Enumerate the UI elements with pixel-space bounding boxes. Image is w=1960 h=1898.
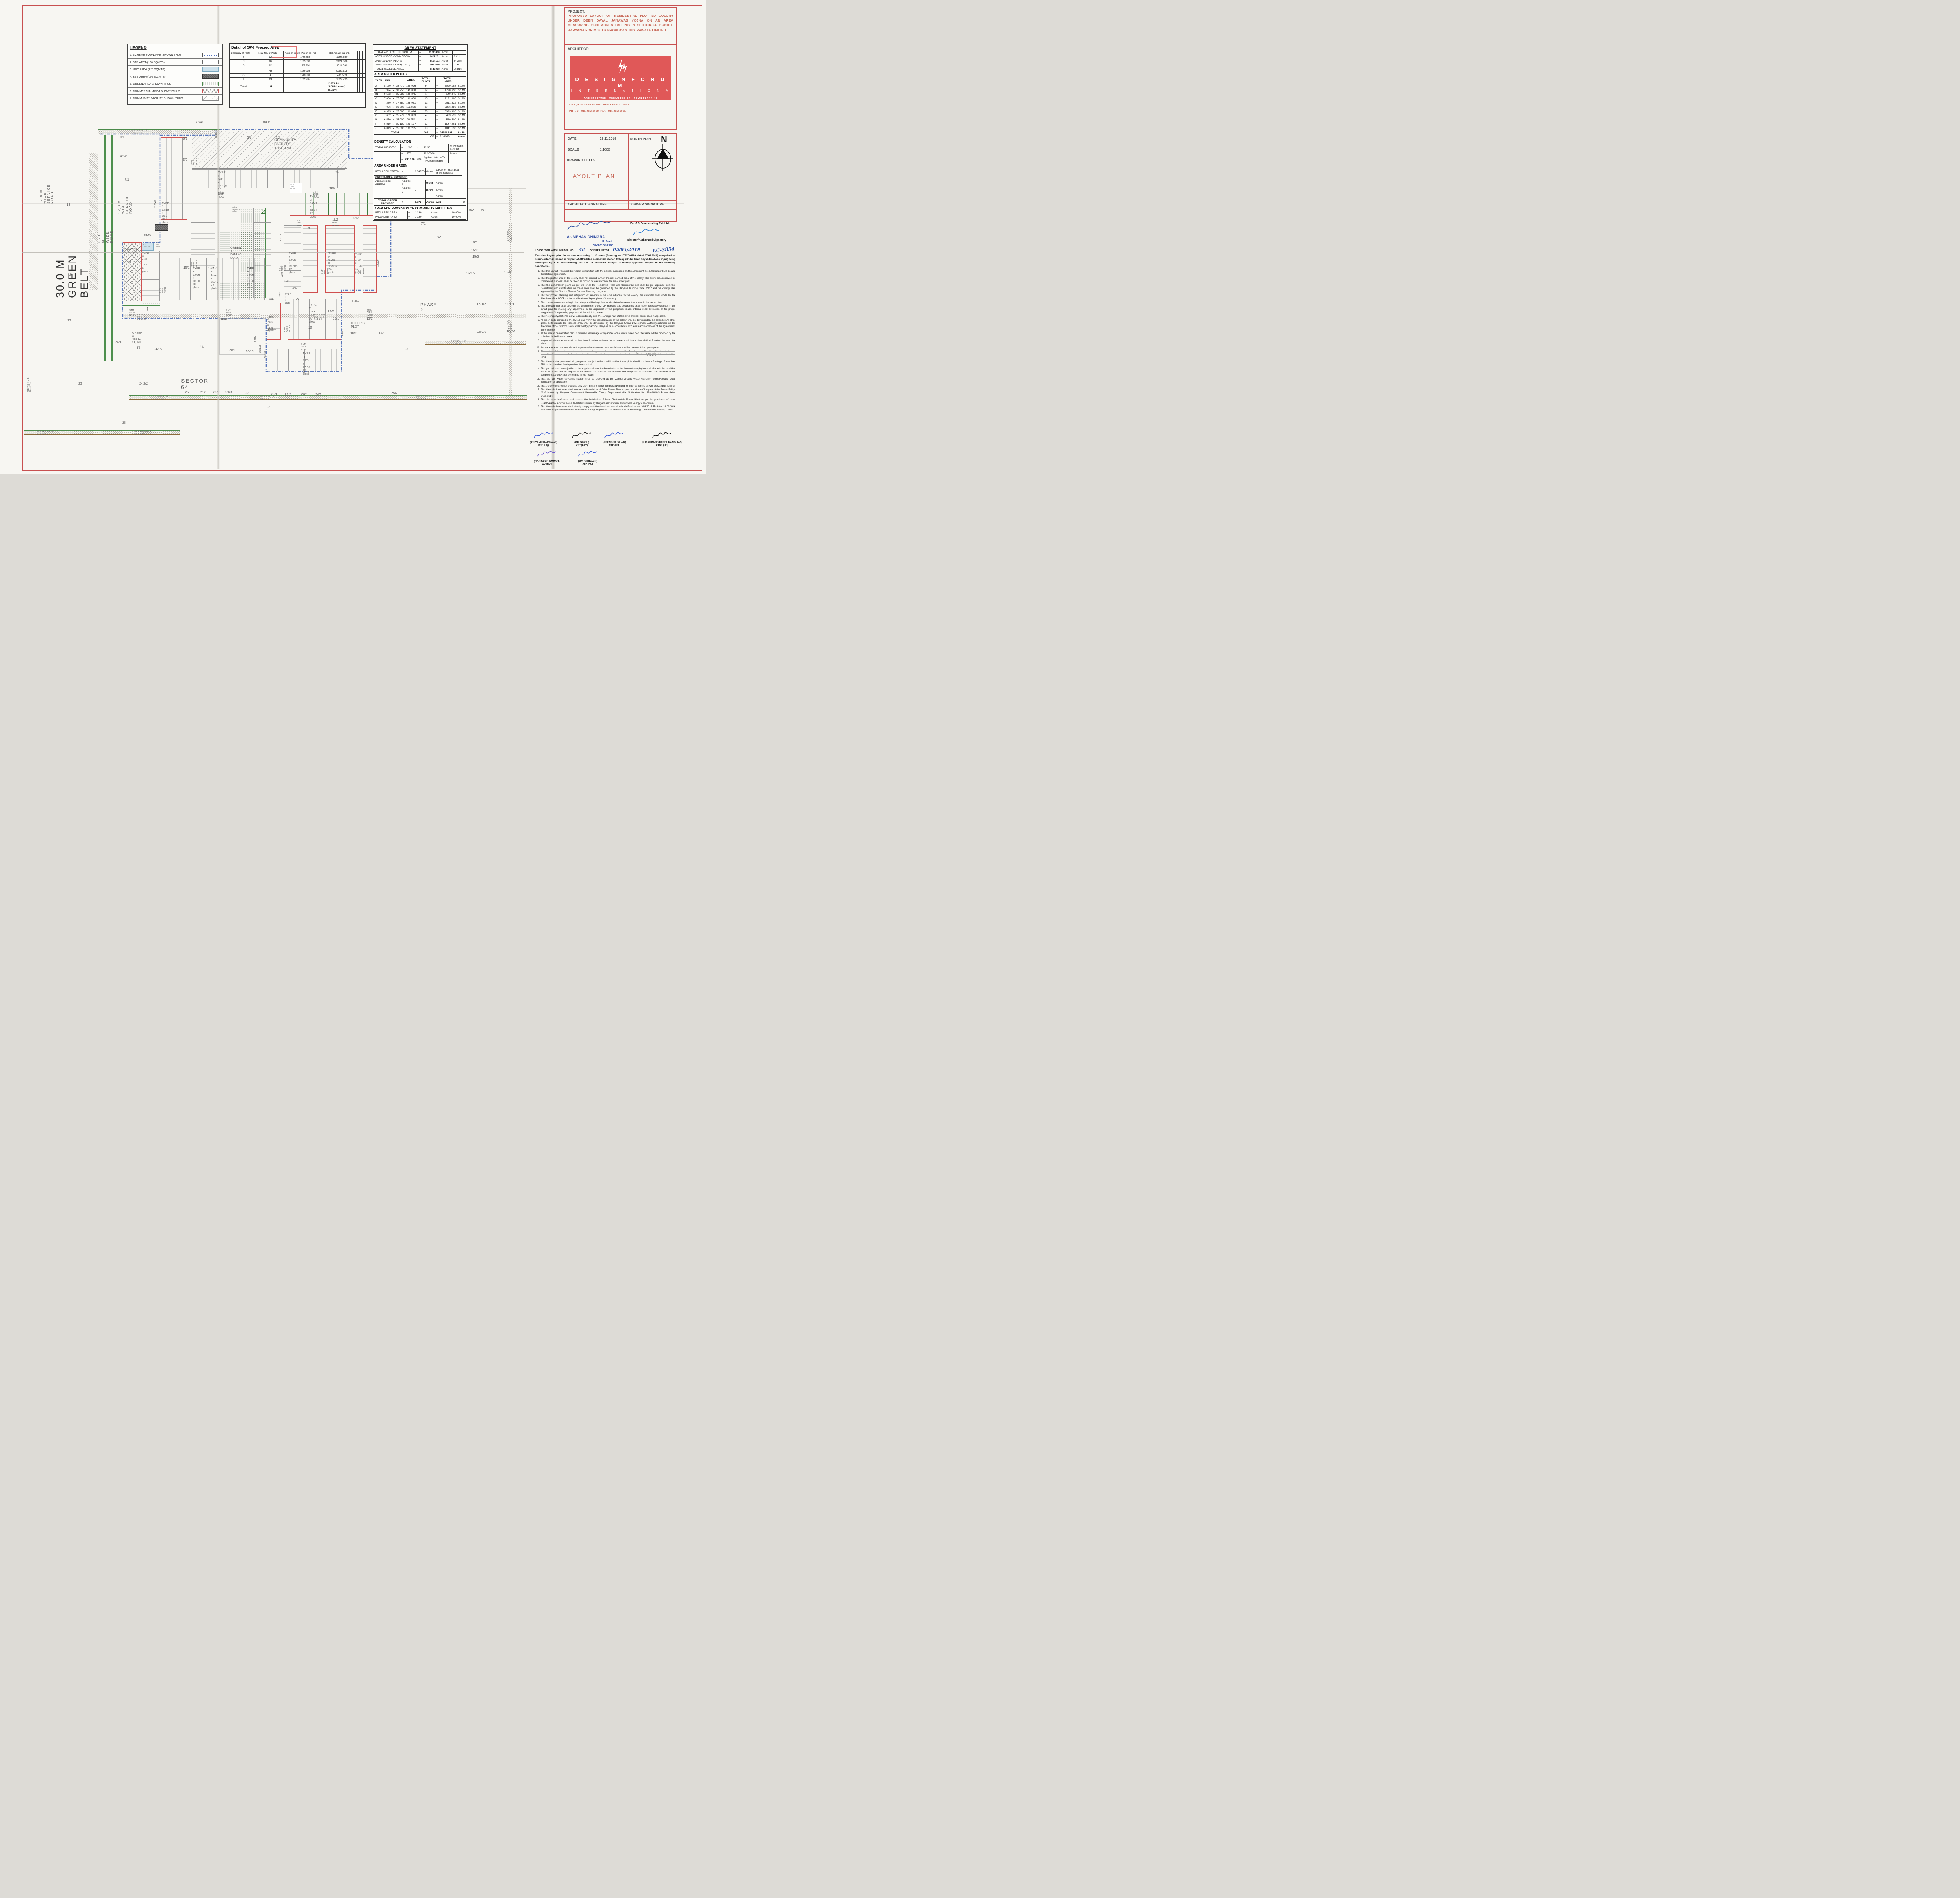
area-plots-cell: 6.819 xyxy=(383,122,392,127)
freezed-cell: 5233.155 xyxy=(327,69,357,73)
plan-block xyxy=(363,225,377,293)
license-condition: That the colonizer/owner shall strictly … xyxy=(541,405,675,412)
density-cell xyxy=(374,156,401,163)
freezed-cell xyxy=(362,55,365,60)
plan-label: 20/1/1 xyxy=(268,328,276,331)
green-provided-title-cell: GREEN AREA PROVIDED xyxy=(374,175,462,180)
plan-label: 8/1/1 xyxy=(353,216,360,220)
area-plots-cell: x xyxy=(392,114,395,118)
area-plots-cell: 7.800 xyxy=(383,97,392,101)
area-plots-row: I6.819x15.125103.13715=1547.061Sq.Mt xyxy=(374,122,466,127)
plan-block xyxy=(123,302,160,306)
area-plots-cell: Sq.Mt xyxy=(457,84,466,88)
area-plots-cell: 6 xyxy=(417,118,436,122)
area-main-cell: = xyxy=(419,59,423,63)
area-plots-cell: 16 xyxy=(417,97,436,101)
area-plots-header-cell xyxy=(392,77,395,84)
license-condition: That the rain water harvesting system sh… xyxy=(541,378,675,384)
plan-label: 33530 xyxy=(352,301,359,303)
freezed-table-el: Category of PlotsTotal No. of PlotsArea … xyxy=(230,51,365,93)
plan-label: 15/4/2 xyxy=(466,272,475,276)
area-plots-cell: 149.976 xyxy=(405,84,417,88)
area-plots-cell: 102.285 xyxy=(405,126,417,131)
density-cell: Against 240 - 400 PPA permissible xyxy=(423,156,449,163)
area-plots-header-cell: TOTAL PLOTS xyxy=(417,77,436,84)
freezed-cell: 12 xyxy=(257,64,284,68)
density-cell: Acres xyxy=(449,151,466,156)
area-plots-cell: 58 xyxy=(417,109,436,114)
plan-block xyxy=(26,24,26,416)
green-provided-cell: Acres xyxy=(435,194,462,199)
plan-label: REVENUE RASTA xyxy=(259,396,276,401)
freezed-row: G4120.883483.533 xyxy=(230,73,365,78)
area-plots-cell: 15.586 xyxy=(395,109,405,114)
drawing-title: LAYOUT PLAN xyxy=(569,173,615,179)
plan-label: 13/2 xyxy=(367,317,373,320)
area-main-cell: 11.30000 xyxy=(423,51,441,55)
plan-label: REVENUE RASTA xyxy=(132,129,149,135)
area-plots-cell: 483.533 xyxy=(439,114,457,118)
density-row: =246.106PPAAgainst 240 - 400 PPA permiss… xyxy=(374,156,466,163)
area-plots-cell: 17.350 xyxy=(395,101,405,105)
plan-label: 21/3 xyxy=(225,390,232,394)
license-condition: That you will have no objection to the r… xyxy=(541,367,675,377)
area-main-cell: = xyxy=(419,51,423,55)
architect-reg: CA/2018/92185 xyxy=(593,243,613,247)
area-main-cell: 0.00680 xyxy=(423,63,441,67)
area-plots-cell: 9.582 xyxy=(383,93,392,97)
area-plots-cell: 103.137 xyxy=(405,122,417,127)
plan-block xyxy=(155,224,168,231)
area-main-cell: = xyxy=(419,54,423,59)
green-provided-cell: 0.844 xyxy=(425,180,435,187)
plan-label: 9 MT. WIDE ROAD xyxy=(191,260,198,267)
area-plots-cell: = xyxy=(436,114,439,118)
area-main-cell: Acres xyxy=(441,59,452,63)
freezed-header-cell: Category of Plots xyxy=(230,51,257,55)
area-plots-cell: 1 xyxy=(417,93,436,97)
owner-sig-header: OWNER SIGNATURE xyxy=(628,200,677,210)
area-plots-cell: 2121.600 xyxy=(439,97,457,101)
signature-scribble-icon xyxy=(571,431,592,439)
area-plots-cell: 1798.650 xyxy=(439,88,457,93)
plan-label: 9 MT. WIDE ROAD xyxy=(226,309,232,317)
plan-label: 5/2 xyxy=(183,158,187,162)
plan-label: 7/2 xyxy=(436,235,441,239)
area-plots-header-cell: SIZE xyxy=(383,77,392,84)
area-statement-title: AREA STATEMENT xyxy=(374,46,466,50)
plan-label: 20117 xyxy=(269,298,274,301)
legend-box: LEGEND 1. SCHEME BOUNDARY SHOWN THUS2. S… xyxy=(127,44,223,105)
legend-item-label: 7. COMMUBITY FACILITY SHOWN THUS xyxy=(128,96,202,100)
plan-label: 117340 xyxy=(154,200,157,208)
community-cell: 10.00% xyxy=(446,211,466,215)
density-cell: TOTAL DENSITY xyxy=(374,144,401,152)
area-plots-cell: Sq.Mt xyxy=(457,93,466,97)
area-plots-cell: 15 xyxy=(417,122,436,127)
legend-item-label: 2. STP AREA (100 SQMTS) xyxy=(128,60,202,64)
green-provided-cell xyxy=(401,194,414,199)
green-total-row: TOTAL GREEN PROVIDED=0.872Acres7.71% xyxy=(374,198,466,206)
density-cell: PPA xyxy=(416,156,423,163)
plan-label: REVENUE RASTA xyxy=(27,377,33,392)
signatory-name: (P.P. SINGH) xyxy=(571,441,592,444)
freezed-area-box: Detail of 50% Freezed Area Category of P… xyxy=(229,43,366,108)
plan-label: 9 MT. WIDE ROAD xyxy=(159,287,167,293)
plan-label: 4/2/2 xyxy=(120,154,127,158)
signature-scribble-icon xyxy=(536,450,557,458)
area-plots-title: AREA UNDER PLOTS xyxy=(374,73,466,76)
plan-label: 6/2 xyxy=(469,208,474,212)
density-cell: 2781 xyxy=(404,151,416,156)
area-main-cell: Acres xyxy=(441,67,452,72)
plan-label: 27 xyxy=(296,297,299,301)
area-plots-header-cell xyxy=(395,77,405,84)
legend-item: 2. STP AREA (100 SQMTS) xyxy=(128,58,222,66)
plan-label: 18/1 xyxy=(379,332,385,335)
architect-signature-icon xyxy=(566,220,613,233)
area-plots-cell: Sq.Mt xyxy=(457,105,466,109)
green-provided-cell xyxy=(414,194,426,199)
signature-area: Ar. MEHAK DHINGRA B. Arch. CA/2018/92185… xyxy=(564,222,677,249)
legend-item: 5. GREEN AREA SHOWN THUS xyxy=(128,80,222,87)
area-plots-table: TYPESIZEAREATOTAL PLOTSTOTAL AREAA8.120x… xyxy=(374,76,466,139)
green-title: AREA UNDER GREEN xyxy=(374,164,466,167)
area-plots-or-cell: = xyxy=(436,135,439,139)
freezed-cell: 48 xyxy=(257,69,284,73)
plan-block xyxy=(129,395,527,400)
plan-block xyxy=(22,252,524,253)
plan-label: ET 100 sq.mt. xyxy=(156,242,160,248)
freezed-row: D12125.9611511.532 xyxy=(230,64,365,68)
signature-scribble-icon xyxy=(577,450,598,458)
plan-label: 5/1 xyxy=(183,137,187,140)
plan-label: 24/1/2 xyxy=(154,347,162,351)
plan-label: 60350 xyxy=(342,330,344,336)
plan-label: TYPE C 7.8 x 17.0 16 plots xyxy=(309,303,317,324)
plan-label: 16760 xyxy=(292,287,297,290)
area-plots-cell: 18.470 xyxy=(395,84,405,88)
green-total-cell: Acres xyxy=(425,198,435,206)
area-plots-cell: x xyxy=(392,88,395,93)
plan-label: GREEN 2 113.44 SQ.MT. xyxy=(132,332,142,344)
plan-block xyxy=(111,135,113,361)
green-provided-cell xyxy=(374,194,401,199)
area-main-cell: 56.816 xyxy=(453,67,466,72)
north-n: N xyxy=(661,134,667,145)
license-condition: That the odd size plots are being approv… xyxy=(541,360,675,367)
area-plots-cell: 132.600 xyxy=(405,97,417,101)
community-title: AREA FOR PROVISION OF COMMUNITY FACILITI… xyxy=(374,207,466,210)
license-date: 05/03/2019 xyxy=(610,247,643,252)
date-label: DATE xyxy=(568,136,577,140)
north-label: NORTH POINT: xyxy=(630,137,653,141)
plan-block xyxy=(104,135,106,361)
area-plots-cell: Sq.Mt xyxy=(457,122,466,127)
plan-label: 25/2 xyxy=(391,391,398,395)
area-main-cell: 2.411 xyxy=(453,54,466,59)
green-required-cell: 0.84750 xyxy=(414,168,426,176)
drawing-sheet: REVENUE RASTAREVENUE RASTA 2 KARAMREVENU… xyxy=(0,0,706,474)
license-conditions: That this Layout Plan shall be read in c… xyxy=(535,270,675,412)
area-plots-cell: x xyxy=(392,97,395,101)
area-plots-cell: 15.125 xyxy=(395,122,405,127)
scale-label: SCALE xyxy=(568,147,579,151)
legend-item-label: 5. GREEN AREA SHOWN THUS xyxy=(128,82,202,85)
plan-label: 3360 xyxy=(215,133,218,138)
density-cell: ÷ xyxy=(416,151,423,156)
area-plots-cell: 7.260 xyxy=(383,101,392,105)
area-plots-total-cell: 24851.825 xyxy=(439,131,457,135)
plan-label: 87177 xyxy=(303,372,309,374)
freezed-cell: 13 xyxy=(257,78,284,82)
area-plots-cell: 12 xyxy=(417,88,436,93)
area-plots-total-cell: 206 xyxy=(417,131,436,135)
plan-label: 15/2 xyxy=(471,249,478,252)
plan-label: OTHER'S PLOT xyxy=(351,321,365,329)
density-title: DENSITY CALCULATION xyxy=(374,140,466,143)
legend-title: LEGEND xyxy=(128,44,222,51)
plan-block xyxy=(509,188,512,396)
area-plots-cell: = xyxy=(436,118,439,122)
area-plots-cell: Sq.Mt xyxy=(457,126,466,131)
green-rows: REQUIRED GREEN=0.84750Acres7.50% of Tota… xyxy=(374,168,466,206)
area-plots-cell: x xyxy=(392,109,395,114)
freezed-cell xyxy=(362,69,365,73)
plan-label: 2/2 xyxy=(276,136,280,140)
freezed-cell: G xyxy=(230,73,257,78)
plan-label: 20/1/3 xyxy=(259,345,262,353)
area-plots-cell: x xyxy=(392,93,395,97)
license-condition: That no property/plot shall derive acces… xyxy=(541,315,675,318)
area-plots-or-cell xyxy=(374,135,417,139)
plan-label: 14 xyxy=(128,260,131,264)
freezed-total-cell: 105 xyxy=(257,82,284,92)
project-box: PROJECT: PROPOSED LAYOUT OF RESIDENTIAL … xyxy=(564,7,677,45)
plan-label: 13 xyxy=(67,203,70,207)
area-plots-or-row: OR=6.14103Acres xyxy=(374,135,466,139)
green-provided-cell xyxy=(425,194,435,199)
community-cell: PROVIDED AREA xyxy=(374,215,408,220)
green-provided-cell: = xyxy=(414,180,426,187)
freezed-cell: 1798.650 xyxy=(327,55,357,60)
plan-label: 23/1 xyxy=(271,392,278,396)
freezed-header-cell: Total Area in sq. mt. xyxy=(327,51,357,55)
legend-item: 1. SCHEME BOUNDARY SHOWN THUS xyxy=(128,51,222,58)
plan-label: 17 xyxy=(136,346,140,350)
signatory-role: STP (E&V) xyxy=(571,444,592,447)
date-value: 29.11.2018 xyxy=(600,136,616,140)
plan-label: PHASE 2 xyxy=(420,303,437,312)
plan-label: 18 xyxy=(68,273,72,276)
plan-label: 15/2 xyxy=(208,267,214,270)
area-plots-cell: 8.120 xyxy=(383,84,392,88)
area-plots-cell: 98.250 xyxy=(405,118,417,122)
area-plots-cell: = xyxy=(436,105,439,109)
area-plots-row: G7.662x15.777120.8834=483.533Sq.Mt xyxy=(374,114,466,118)
license-condition: At the time of demarcation plan, if requ… xyxy=(541,332,675,338)
plan-label: TYPE E 7.056 x 16.00 20 plots xyxy=(247,267,254,289)
freezed-total-cell xyxy=(284,82,327,92)
plan-label: 15/1 xyxy=(183,266,190,269)
green-provided-title-row: GREEN AREA PROVIDED xyxy=(374,175,466,180)
legend-item-label: 4. ESS AREA (100 SQ.MTS) xyxy=(128,75,202,78)
freezed-cell xyxy=(362,60,365,64)
area-plots-cell: I xyxy=(374,122,383,127)
ess-swatch-icon xyxy=(202,74,219,79)
signatory: (OM PARKASH)ATP (HQ) xyxy=(577,450,598,465)
dfi-tagline: • ARCHITECTURE • URBAN DESIGN • TOWN PLA… xyxy=(570,97,671,100)
plan-label: 9 MT. WIDE ROAD xyxy=(301,343,307,351)
green-required-cell: = xyxy=(401,168,414,176)
drawing-title-cell: DRAWING TITLE:- LAYOUT PLAN xyxy=(565,156,629,201)
area-plots-cell: 120.883 xyxy=(405,114,417,118)
density-row: TOTAL DENSITY=206x13.50@ Person's per Pl… xyxy=(374,144,466,152)
area-plots-cell: 7.056 xyxy=(383,105,392,109)
plan-label: 23/2 xyxy=(285,393,291,397)
area-plots-header: TYPESIZEAREATOTAL PLOTSTOTAL AREA xyxy=(374,77,466,84)
dfi-name: D E S I G N F O R U M xyxy=(570,76,671,88)
plan-label: 11 xyxy=(250,267,253,270)
area-plots-row: B7.994x18.750149.88812=1798.650Sq.Mt xyxy=(374,88,466,93)
area-main-cell: Acres xyxy=(441,51,452,55)
area-plots-cell: D xyxy=(374,101,383,105)
density-cell: 11.30000 xyxy=(423,151,449,156)
area-plots-row: D7.260x17.350125.96112=1511.532Sq.Mt xyxy=(374,101,466,105)
community-cell: Acres xyxy=(430,211,446,215)
legend-item: 4. ESS AREA (100 SQ.MTS) xyxy=(128,73,222,80)
plan-label: 28 xyxy=(405,347,408,351)
area-plots-cell: G xyxy=(374,114,383,118)
license-condition: That the demarcation plans as per site o… xyxy=(541,284,675,294)
plan-label: REVENUE RASTA xyxy=(153,396,170,401)
license-no: 48 xyxy=(575,247,589,252)
signatory-role: ATP (HQ) xyxy=(577,463,598,465)
plan-label: 22 xyxy=(245,391,249,395)
area-plots-cell: = xyxy=(436,109,439,114)
owner-signature-icon xyxy=(632,227,659,237)
license-condition: All green belts provided in the layout p… xyxy=(541,319,675,332)
freezed-total-row: Total10512478.18 (3.0834 acres) 50.21% xyxy=(230,82,365,92)
area-plots-cell: J xyxy=(374,126,383,131)
green-provided-cell xyxy=(374,187,401,194)
signatory-name: (JITENDER SIHAG) xyxy=(603,441,626,444)
plan-label: 23 xyxy=(78,382,82,385)
plan-label: TYPE F 6.995 x 15.586 24 plots xyxy=(328,252,337,274)
freezed-cell: 102.285 xyxy=(284,78,327,82)
area-plots-total-cell: = xyxy=(436,131,439,135)
freezed-cell: 4 xyxy=(257,73,284,78)
plan-label: 16/2/2 xyxy=(477,330,486,334)
plan-label: 16/2/2 xyxy=(506,330,516,334)
area-main-cell: 0.27251 xyxy=(423,54,441,59)
license-condition: That the plotted area of the colony shal… xyxy=(541,277,675,283)
area-plots-total-row: TOTAL206=24851.825Sq.Mt xyxy=(374,131,466,135)
area-plots-cell: 149.345 xyxy=(405,93,417,97)
architect-degree: B. Arch. xyxy=(602,240,613,243)
area-plots-cell: Sq.Mt xyxy=(457,109,466,114)
arch-sig-header: ARCHITECT SIGNATURE xyxy=(565,200,629,210)
green-provided-row: ORGANISED GREENGREEN-1=0.844Acres xyxy=(374,180,466,187)
architect-name: Ar. MEHAK DHINGRA xyxy=(567,235,605,239)
green-provided-row: Acres xyxy=(374,194,466,199)
area-plots-cell: x xyxy=(392,101,395,105)
plan-label: 9 MT. WIDE ROAD xyxy=(321,268,329,274)
signatory-role: DTCP (HR) xyxy=(642,444,682,447)
area-plots-cell: = xyxy=(436,88,439,93)
area-plots-cell: = xyxy=(436,93,439,97)
area-main-cell: = xyxy=(419,67,423,72)
freezed-row: J13102.2851329.705 xyxy=(230,78,365,82)
plan-label: 78800 xyxy=(328,187,335,190)
legend-item: 6. COMMERCIAL AREA SHOWN THUS xyxy=(128,87,222,95)
signatory: (JITENDER SIHAG)CTP (HR) xyxy=(603,431,626,447)
freezed-cell: D xyxy=(230,64,257,68)
plan-label: TYPE H 6.55 x 15.0 6 plots xyxy=(142,252,149,273)
legend-item-label: 3. UGT AREA (128 SQMTS) xyxy=(128,67,202,71)
green-total-cell: TOTAL GREEN PROVIDED xyxy=(374,198,401,206)
plan-label: 24/1 xyxy=(301,392,308,396)
area-plots-cell: 109.024 xyxy=(405,109,417,114)
area-main-cell: TOTAL SALEBLE AREA xyxy=(374,67,419,72)
plan-label: 8/2 xyxy=(334,218,338,222)
plan-label: 3350 xyxy=(281,272,284,277)
plan-label: 33485 xyxy=(279,292,281,297)
area-main-row: AREA UNDER COMMERCIAL=0.27251Acres2.411 xyxy=(374,54,466,59)
community-cell: 1.130 xyxy=(414,211,430,215)
license-lc-note: LC-3854 xyxy=(652,246,675,254)
area-main-cell: Acres xyxy=(441,54,452,59)
plan-label: 15/1 xyxy=(471,241,478,245)
scale-value: 1:1000 xyxy=(600,147,610,151)
freezed-row: C16132.6002121.600 xyxy=(230,60,365,64)
area-plots-header-cell: TYPE xyxy=(374,77,383,84)
community-row: REQUIRED AREA=1.130Acres10.00% xyxy=(374,211,466,215)
plan-label: 9 xyxy=(308,226,310,230)
green-total-cell: 0.872 xyxy=(414,198,426,206)
area-plots-cell: Sq.Mt xyxy=(457,88,466,93)
license-condition: Any excess area over and above the permi… xyxy=(541,346,675,349)
area-plots-header-cell xyxy=(436,77,439,84)
green-provided-cell: Acres xyxy=(435,180,462,187)
area-plots-row: J6.819x15.000102.28518=1841.130Sq.Mt xyxy=(374,126,466,131)
owner-for: For J S Broadcasting Pvt. Ltd. xyxy=(630,222,670,225)
signatory-name: (NARINDER KUMAR) xyxy=(534,460,560,463)
plan-label: 7/1 xyxy=(125,178,129,182)
drawing-title-label: DRAWING TITLE:- xyxy=(567,158,595,162)
plan-label: STP 100 sq.mt. xyxy=(290,183,295,190)
freezed-cell: 16 xyxy=(257,60,284,64)
community-table: REQUIRED AREA=1.130Acres10.00%PROVIDED A… xyxy=(374,211,466,220)
plan-label: 9 MT. WIDE ROAD xyxy=(313,191,319,198)
area-plots-cell: 6.995 xyxy=(383,109,392,114)
area-main-cell: 6.42033 xyxy=(423,67,441,72)
plan-label: 4/1 xyxy=(120,136,124,139)
plan-label: REVENUE RASTA xyxy=(37,431,54,436)
plan-label: 26 xyxy=(335,170,339,174)
area-plots-cell: 149.345 xyxy=(439,93,457,97)
legend-item-label: 6. COMMERCIAL AREA SHOWN THUS xyxy=(128,89,202,93)
community-cell: Acres xyxy=(430,215,446,220)
area-plots-row: A8.120x18.470149.97634=5099.198Sq.Mt xyxy=(374,84,466,88)
area-plots-cell: E xyxy=(374,105,383,109)
project-text: PROPOSED LAYOUT OF RESIDENTIAL PLOTTED C… xyxy=(568,13,673,33)
signatory-role: CTP (HR) xyxy=(603,444,626,447)
area-plots-cell: x xyxy=(392,118,395,122)
area-plots-cell: Sq.Mt xyxy=(457,101,466,105)
plan-label: 9 MT. WIDE ROAD xyxy=(129,309,136,317)
area-plots-cell: 589.500 xyxy=(439,118,457,122)
